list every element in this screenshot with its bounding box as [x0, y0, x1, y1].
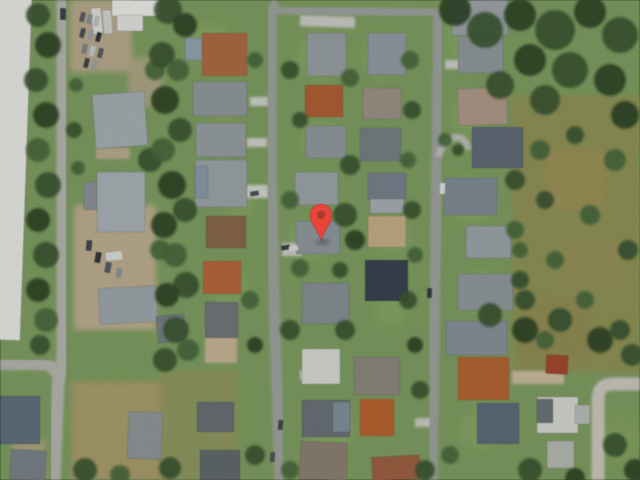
- screenshot-root: [0, 0, 640, 480]
- satellite-map-view[interactable]: [0, 0, 640, 480]
- pin-inner-dot: [317, 211, 325, 219]
- satellite-canvas: [0, 0, 640, 480]
- pin-shadow: [316, 239, 330, 245]
